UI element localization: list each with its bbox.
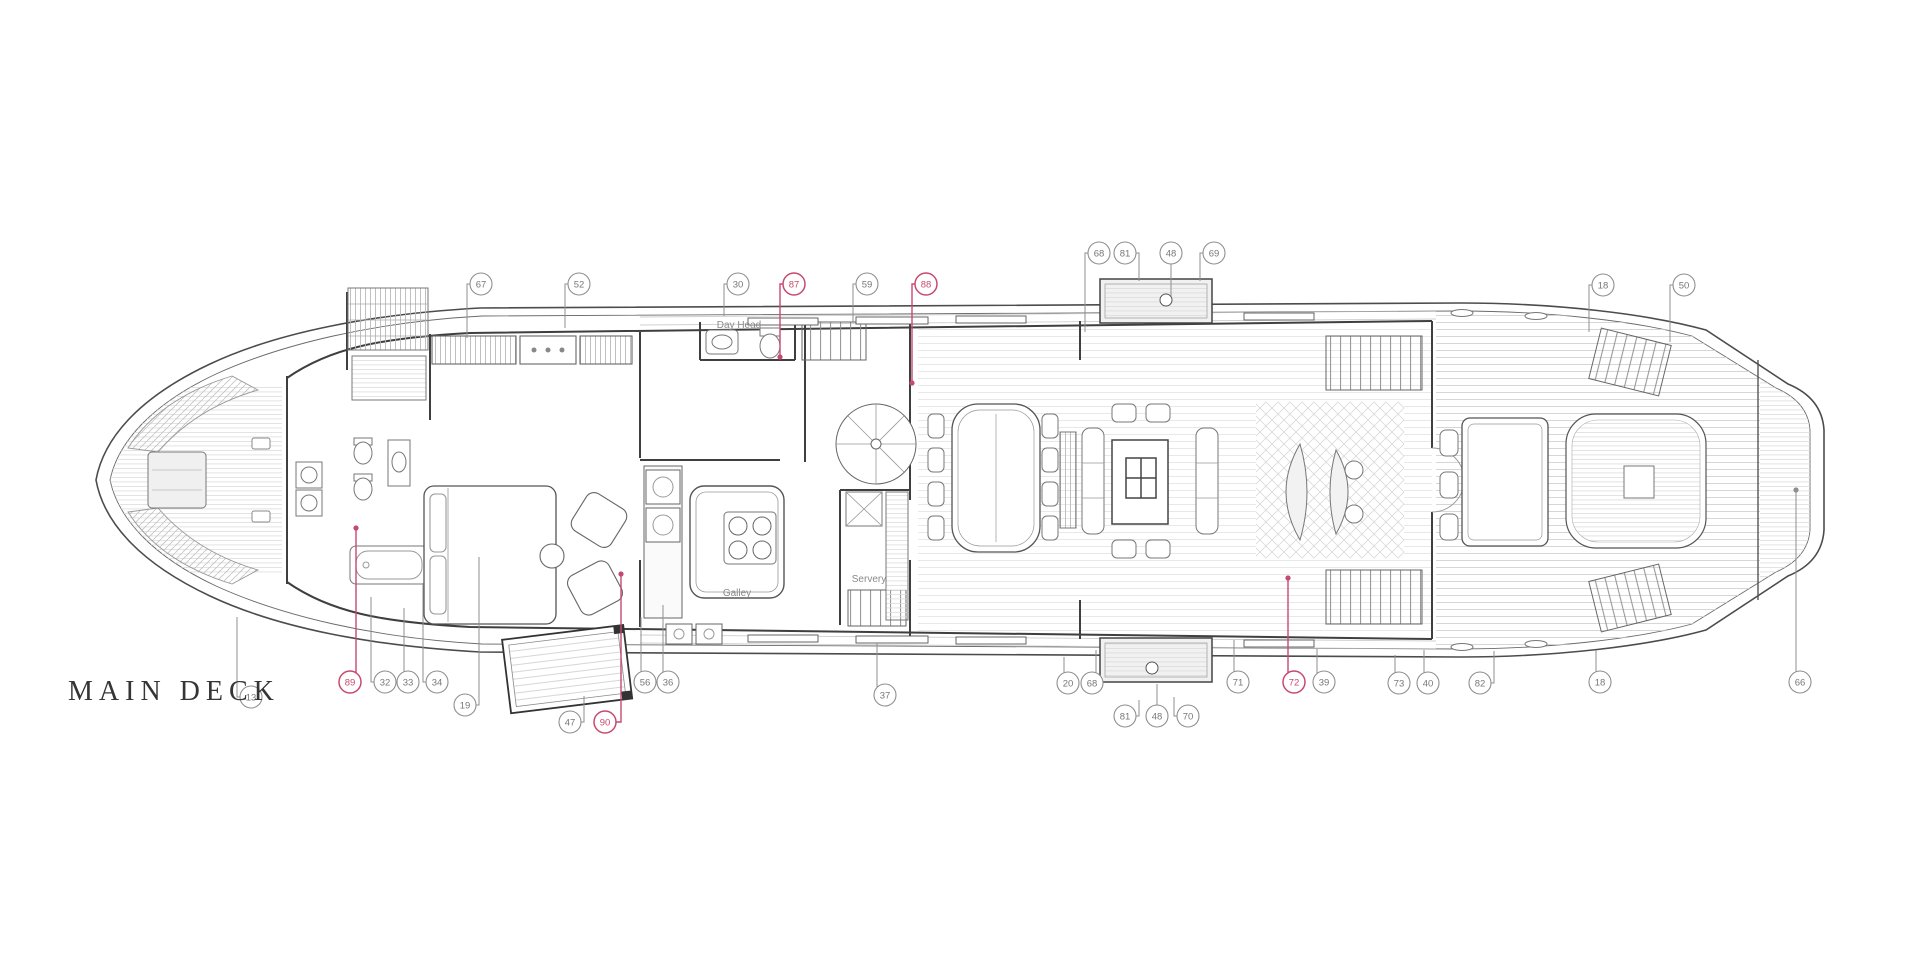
pillow <box>430 556 446 614</box>
sofa <box>1082 428 1104 534</box>
balcony-latch <box>1160 294 1172 306</box>
bar-lounge <box>1256 402 1404 558</box>
main-deck-plan-page: 6752308759886881486918501389323334194790… <box>0 0 1920 960</box>
armchair <box>1146 404 1170 422</box>
callout-number: 90 <box>600 717 611 728</box>
washer-door <box>301 467 317 483</box>
dryer-door <box>301 495 317 511</box>
lounge-console <box>1624 466 1654 498</box>
callout-number: 32 <box>380 677 391 688</box>
dresser <box>432 336 516 364</box>
callout-70[interactable]: 70 <box>1174 697 1199 727</box>
windlass <box>252 511 270 522</box>
callout-number: 40 <box>1423 678 1434 689</box>
callout-81[interactable]: 81 <box>1114 242 1139 281</box>
armchair <box>1112 540 1136 558</box>
armchair <box>1112 404 1136 422</box>
deck-chair <box>1440 472 1458 498</box>
sideboard <box>1060 432 1076 528</box>
callout-number: 18 <box>1598 280 1609 291</box>
windlass <box>252 438 270 449</box>
bathtub-drain <box>363 562 369 568</box>
callout-18[interactable]: 18 <box>1589 650 1611 693</box>
leader-dot <box>618 571 623 576</box>
callout-number: 87 <box>789 279 800 290</box>
stair-run <box>1326 570 1422 624</box>
callout-number: 20 <box>1063 678 1074 689</box>
callout-number: 47 <box>565 717 576 728</box>
locker-cabinet <box>348 288 428 350</box>
callout-number: 73 <box>1394 678 1405 689</box>
fold-out-balcony-bottom <box>1100 638 1212 682</box>
armchair <box>1146 540 1170 558</box>
callout-number: 59 <box>862 279 873 290</box>
callout-81[interactable]: 81 <box>1114 700 1139 727</box>
callout-number: 81 <box>1120 248 1131 259</box>
deck-chair <box>1440 430 1458 456</box>
room-label-servery: Servery <box>852 574 886 585</box>
hinge <box>613 625 624 634</box>
fold-out-balcony-top <box>1100 279 1212 323</box>
toilet <box>354 442 372 464</box>
side-boarding-platform <box>502 625 632 713</box>
stool <box>1345 461 1363 479</box>
callout-number: 81 <box>1120 711 1131 722</box>
leader-dot <box>909 380 914 385</box>
room-label-galley: Galley <box>723 588 751 599</box>
callout-number: 37 <box>880 690 891 701</box>
callout-number: 67 <box>476 279 487 290</box>
pillow <box>430 494 446 552</box>
hinge <box>621 690 632 699</box>
callout-20[interactable]: 20 <box>1057 657 1079 694</box>
stair-run <box>802 322 866 360</box>
callout-number: 36 <box>663 677 674 688</box>
callout-number: 88 <box>921 279 932 290</box>
callout-73[interactable]: 73 <box>1388 655 1410 694</box>
callout-number: 34 <box>432 677 443 688</box>
callout-number: 68 <box>1087 678 1098 689</box>
side-table <box>540 544 564 568</box>
wardrobe <box>580 336 632 364</box>
callout-number: 89 <box>345 677 356 688</box>
servery-counter <box>886 492 908 620</box>
deck-plan-svg: 6752308759886881486918501389323334194790… <box>0 0 1920 960</box>
aft-deck <box>1440 414 1706 548</box>
callout-number: 48 <box>1152 711 1163 722</box>
callout-number: 33 <box>403 677 414 688</box>
callout-number: 39 <box>1319 677 1330 688</box>
callout-number: 50 <box>1679 280 1690 291</box>
sink <box>712 335 732 349</box>
callout-number: 48 <box>1166 248 1177 259</box>
callout-number: 72 <box>1289 677 1300 688</box>
sofa <box>1196 428 1218 534</box>
leader-dot <box>777 354 782 359</box>
callout-number: 82 <box>1475 678 1486 689</box>
deck-title: MAIN DECK <box>68 676 280 707</box>
deck-chair <box>1440 514 1458 540</box>
stool <box>1345 505 1363 523</box>
balcony-latch <box>1146 662 1158 674</box>
leader-dot <box>1285 575 1290 580</box>
callout-number: 71 <box>1233 677 1244 688</box>
locker-cabinet <box>352 356 426 400</box>
callout-number: 52 <box>574 279 585 290</box>
callout-number: 19 <box>460 700 471 711</box>
callout-number: 70 <box>1183 711 1194 722</box>
callout-69[interactable]: 69 <box>1200 242 1225 281</box>
callout-number: 69 <box>1209 248 1220 259</box>
callout-number: 18 <box>1595 677 1606 688</box>
stair-run <box>1326 336 1422 390</box>
bow-sunpad <box>148 452 206 508</box>
callout-number: 30 <box>733 279 744 290</box>
toilet <box>760 334 780 358</box>
callout-48[interactable]: 48 <box>1146 684 1168 727</box>
callout-number: 56 <box>640 677 651 688</box>
room-label-day-head: Day Head <box>717 320 761 331</box>
leader-dot <box>353 525 358 530</box>
sink <box>392 452 406 472</box>
callout-number: 68 <box>1094 248 1105 259</box>
callout-number: 66 <box>1795 677 1806 688</box>
toilet <box>354 478 372 500</box>
leader-dot <box>1793 487 1798 492</box>
